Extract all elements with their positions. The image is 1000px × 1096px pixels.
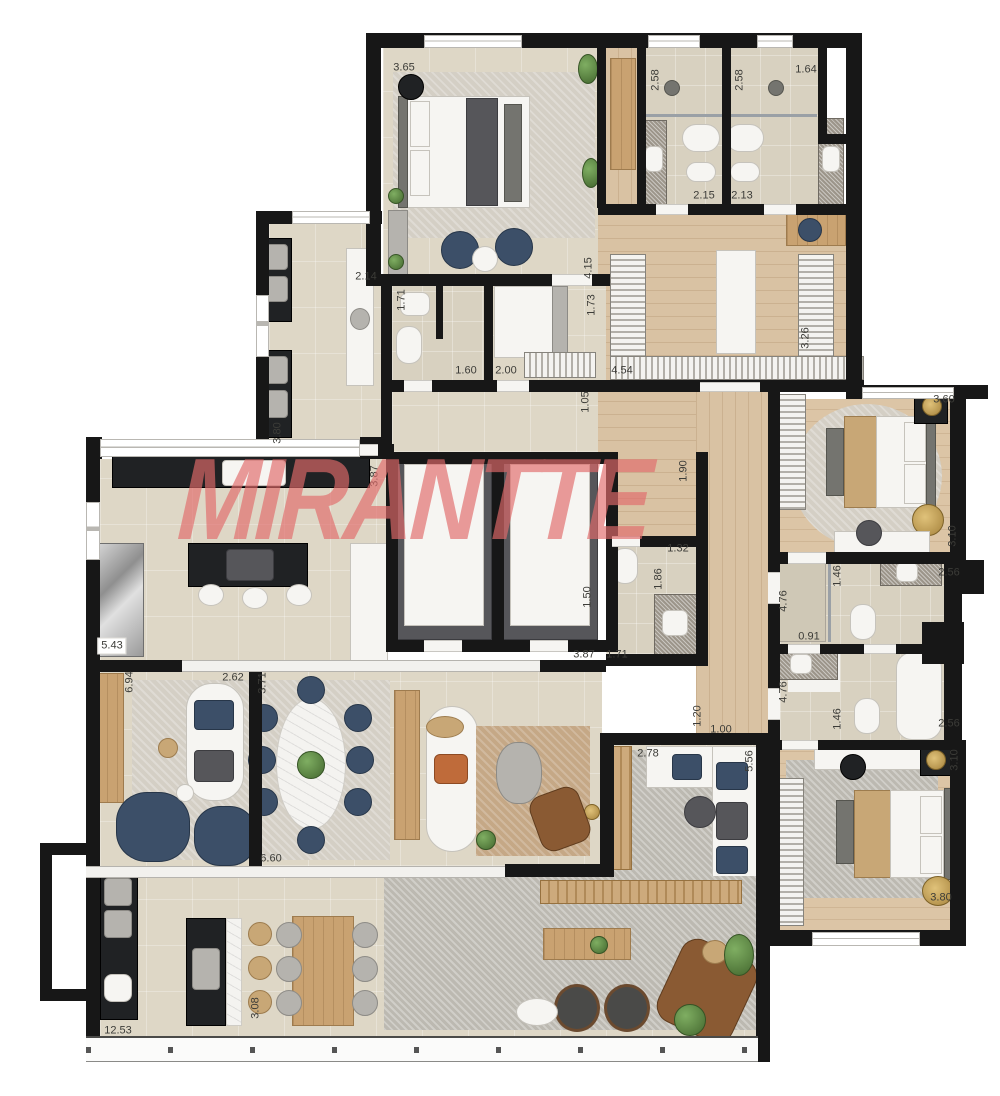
dimension-label: 1.05 bbox=[581, 391, 592, 412]
toilet bbox=[686, 162, 716, 182]
wall bbox=[922, 622, 964, 664]
wall bbox=[600, 733, 614, 877]
wall bbox=[600, 733, 760, 745]
dimension-label: 5.56 bbox=[745, 750, 756, 771]
dimension-label: 3.87 bbox=[573, 650, 594, 661]
dimension-label: 2.58 bbox=[651, 69, 662, 90]
cushion bbox=[716, 846, 748, 874]
dimension-label: 2.58 bbox=[735, 69, 746, 90]
wall bbox=[756, 733, 770, 1062]
dimension-label: 1.46 bbox=[833, 708, 844, 729]
wall bbox=[86, 660, 182, 672]
service-sink bbox=[350, 308, 370, 330]
closet-island bbox=[716, 250, 756, 354]
wall bbox=[505, 864, 613, 877]
window bbox=[648, 35, 700, 48]
window bbox=[292, 211, 370, 224]
wardrobe-rack bbox=[610, 356, 864, 380]
dimension-label: 4.76 bbox=[779, 590, 790, 611]
wall bbox=[540, 660, 606, 672]
dimension-label: 1.71 bbox=[606, 650, 627, 661]
cushion bbox=[672, 754, 702, 780]
floor-plan: 3.652.582.581.642.152.134.153.262.141.71… bbox=[0, 0, 1000, 1096]
toilet bbox=[730, 162, 760, 182]
door-opening bbox=[788, 552, 826, 564]
chair bbox=[840, 754, 866, 780]
wall bbox=[818, 134, 862, 144]
wall bbox=[818, 46, 827, 142]
coffee-table bbox=[543, 928, 631, 960]
wardrobe-rack bbox=[610, 254, 646, 358]
headboard bbox=[552, 286, 568, 358]
plant bbox=[388, 188, 404, 204]
dimension-label: 2.62 bbox=[222, 673, 243, 684]
dimension-label: 6.60 bbox=[260, 854, 281, 865]
grill bbox=[104, 878, 132, 906]
door-opening bbox=[530, 640, 568, 652]
bookshelf bbox=[96, 673, 124, 803]
stool bbox=[242, 587, 268, 609]
shower-glass bbox=[641, 114, 723, 117]
centerpiece bbox=[297, 751, 325, 779]
bench bbox=[540, 880, 742, 904]
dimension-label: 1.50 bbox=[583, 586, 594, 607]
sink bbox=[896, 562, 918, 582]
chair bbox=[856, 520, 882, 546]
pillow bbox=[904, 422, 926, 462]
side-table bbox=[158, 738, 178, 758]
cushion bbox=[194, 700, 234, 730]
bed-throw bbox=[466, 98, 498, 206]
plant bbox=[388, 254, 404, 270]
pendant-lamp bbox=[398, 74, 424, 100]
dimension-label: 2.14 bbox=[355, 272, 376, 283]
wall bbox=[958, 560, 984, 594]
plant bbox=[476, 830, 496, 850]
window bbox=[256, 295, 269, 357]
partition bbox=[436, 283, 443, 339]
wall bbox=[392, 380, 864, 392]
glass-door bbox=[182, 660, 540, 672]
dimension-label: 3.10 bbox=[948, 525, 959, 546]
toilet bbox=[850, 604, 876, 640]
side-table bbox=[426, 716, 464, 738]
chair bbox=[798, 218, 822, 242]
door-opening bbox=[404, 380, 432, 392]
cooktop bbox=[192, 948, 220, 990]
dimension-label: 4.76 bbox=[779, 681, 790, 702]
island-top bbox=[226, 918, 242, 1026]
cushion bbox=[716, 802, 748, 840]
dimension-label: 4.15 bbox=[584, 257, 595, 278]
dimension-label: 2.78 bbox=[637, 749, 658, 760]
dimension-label: 2.56 bbox=[938, 719, 959, 730]
toilet bbox=[854, 698, 880, 734]
balcony-railing bbox=[86, 1036, 758, 1062]
wall bbox=[40, 843, 52, 1001]
wall bbox=[366, 33, 381, 286]
door-opening bbox=[788, 644, 820, 654]
dimension-label: 1.60 bbox=[455, 366, 476, 377]
grill bbox=[104, 910, 132, 938]
toilet bbox=[396, 326, 422, 364]
sink bbox=[104, 974, 132, 1002]
dimension-label: 1.46 bbox=[833, 565, 844, 586]
glass-door bbox=[86, 866, 505, 878]
sink bbox=[790, 654, 812, 674]
shower-head bbox=[768, 80, 784, 96]
dimension-label: 1.00 bbox=[710, 725, 731, 736]
pillow bbox=[920, 796, 942, 834]
dimension-label: 3.65 bbox=[393, 63, 414, 74]
wall bbox=[598, 204, 862, 215]
chair bbox=[276, 922, 302, 948]
hall-bench bbox=[610, 58, 636, 170]
wall bbox=[597, 46, 606, 208]
dimension-label: 2.15 bbox=[693, 191, 714, 202]
chair bbox=[344, 788, 372, 816]
chair bbox=[297, 826, 325, 854]
lamp bbox=[926, 750, 946, 770]
plant bbox=[590, 936, 608, 954]
dimension-label: 12.53 bbox=[104, 1026, 132, 1037]
window bbox=[757, 35, 793, 48]
wall bbox=[637, 46, 646, 208]
wall bbox=[40, 989, 100, 1001]
single-bed bbox=[494, 286, 558, 358]
plant bbox=[724, 934, 754, 976]
dimension-label: 4.54 bbox=[611, 366, 632, 377]
chair bbox=[352, 956, 378, 982]
dimension-label: 3.60 bbox=[933, 395, 954, 406]
wall bbox=[484, 280, 493, 384]
stool bbox=[198, 584, 224, 606]
wardrobe-rack bbox=[776, 394, 806, 510]
chair bbox=[276, 956, 302, 982]
chair bbox=[554, 984, 600, 1032]
bed-bench bbox=[836, 800, 854, 864]
door-opening bbox=[864, 644, 896, 654]
watermark: MIRANTTE bbox=[175, 441, 736, 557]
chair bbox=[352, 990, 378, 1016]
pillow bbox=[410, 150, 430, 196]
door-opening bbox=[782, 740, 818, 750]
dimension-label: 2.13 bbox=[731, 191, 752, 202]
shower-glass bbox=[731, 114, 817, 117]
headboard bbox=[926, 414, 936, 510]
chair bbox=[604, 984, 650, 1032]
stool bbox=[248, 922, 272, 946]
wall bbox=[381, 274, 392, 456]
bathtub bbox=[726, 124, 764, 152]
plant bbox=[578, 54, 598, 84]
chair bbox=[276, 990, 302, 1016]
armchair bbox=[116, 792, 190, 862]
lounge-chair bbox=[496, 742, 542, 804]
pillow bbox=[904, 464, 926, 504]
bed-bench bbox=[504, 104, 522, 202]
dimension-label: 0.91 bbox=[798, 632, 819, 643]
sink bbox=[662, 610, 688, 636]
shower-head bbox=[664, 80, 680, 96]
window bbox=[86, 502, 100, 560]
side-table bbox=[176, 784, 194, 802]
sink bbox=[822, 146, 840, 172]
chair bbox=[344, 704, 372, 732]
sink bbox=[645, 146, 663, 172]
dimension-label: 1.20 bbox=[693, 705, 704, 726]
dimension-label: 1.64 bbox=[795, 65, 816, 76]
stool bbox=[248, 956, 272, 980]
chair bbox=[297, 676, 325, 704]
dimension-label: 6.94 bbox=[125, 671, 136, 692]
door-opening bbox=[656, 204, 688, 215]
wall bbox=[950, 740, 966, 946]
window bbox=[424, 35, 522, 48]
chair bbox=[352, 922, 378, 948]
dimension-label: 3.26 bbox=[801, 327, 812, 348]
wardrobe-rack bbox=[524, 352, 596, 378]
console bbox=[394, 690, 420, 840]
side-table bbox=[516, 998, 558, 1026]
wall bbox=[768, 392, 780, 564]
dimension-label: 2.56 bbox=[938, 568, 959, 579]
door-opening bbox=[424, 640, 462, 652]
bathtub bbox=[682, 124, 720, 152]
armchair bbox=[495, 228, 533, 266]
dimension-label: 1.73 bbox=[587, 294, 598, 315]
dimension-label: 3.80 bbox=[930, 893, 951, 904]
pillow bbox=[920, 836, 942, 874]
dimension-label: 1.86 bbox=[654, 568, 665, 589]
blanket bbox=[844, 416, 878, 508]
bench bbox=[612, 746, 632, 870]
plant bbox=[674, 1004, 706, 1036]
stool bbox=[286, 584, 312, 606]
armchair bbox=[194, 806, 256, 866]
window bbox=[812, 932, 920, 946]
dimension-label: 2.00 bbox=[495, 366, 516, 377]
dimension-label: 3.08 bbox=[251, 997, 262, 1018]
dimension-label: 3.10 bbox=[950, 749, 961, 770]
door-opening bbox=[497, 380, 529, 392]
bed-bench bbox=[826, 428, 844, 496]
wall bbox=[722, 46, 731, 208]
bathtub bbox=[896, 652, 942, 740]
door-opening bbox=[700, 382, 760, 392]
door-opening bbox=[764, 204, 796, 215]
dimension-label: 3.71 bbox=[258, 672, 269, 693]
cushion bbox=[194, 750, 234, 782]
coffee-table bbox=[684, 796, 716, 828]
dimension-label: 5.43 bbox=[97, 638, 126, 655]
chair bbox=[346, 746, 374, 774]
pillow bbox=[410, 101, 430, 147]
dimension-label: 1.71 bbox=[397, 289, 408, 310]
side-table bbox=[472, 246, 498, 272]
cushion bbox=[434, 754, 468, 784]
blanket bbox=[854, 790, 892, 878]
